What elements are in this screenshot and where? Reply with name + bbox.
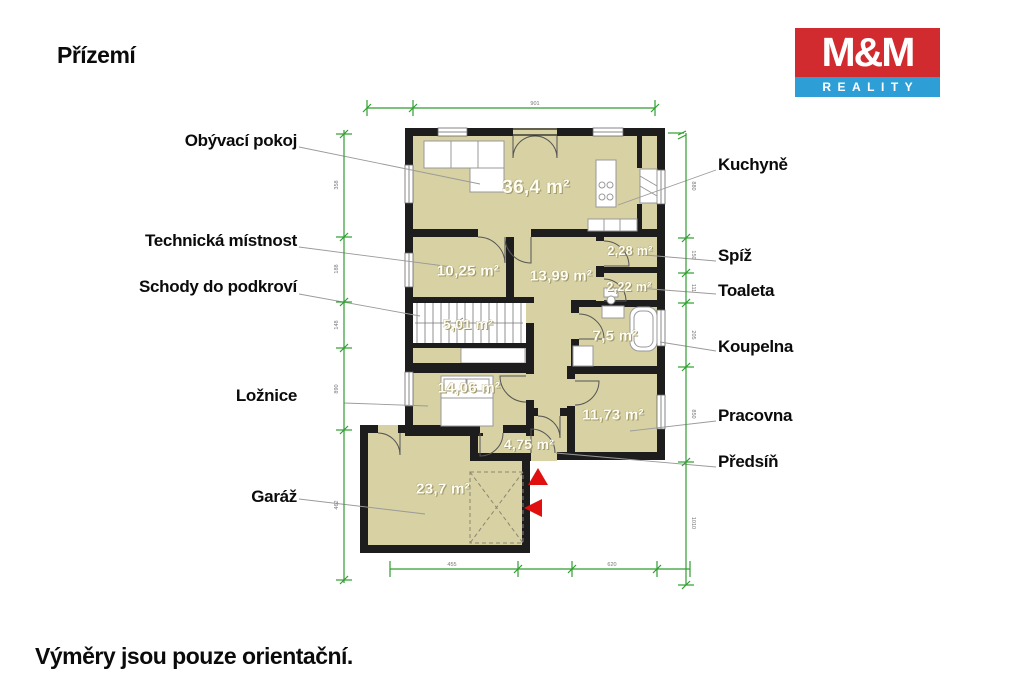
svg-text:890: 890 xyxy=(334,384,340,393)
area-chodba: 13,99 m² xyxy=(530,268,592,285)
floorplan-page: 901 455 620 358 188 148 890 462 880 150 … xyxy=(0,0,1024,683)
label-koupelna: Koupelna xyxy=(718,337,793,357)
page-title: Přízemí xyxy=(57,42,135,69)
logo-red-box: M&M xyxy=(795,28,940,77)
label-loznice: Ložnice xyxy=(236,386,297,406)
sofa xyxy=(424,141,504,168)
svg-text:880: 880 xyxy=(690,181,696,190)
floorplan-drawing: 901 455 620 358 188 148 890 462 880 150 … xyxy=(0,0,1024,683)
area-pracovna: 11,73 m² xyxy=(582,407,644,424)
area-toaleta: 2,22 m² xyxy=(606,280,651,294)
svg-text:455: 455 xyxy=(447,562,456,568)
svg-text:462: 462 xyxy=(334,500,340,509)
wardrobe-niche xyxy=(461,348,525,363)
svg-text:205: 205 xyxy=(690,330,696,339)
svg-text:148: 148 xyxy=(334,320,340,329)
area-predsin: 4,75 m² xyxy=(504,436,554,452)
area-garaz: 23,7 m² xyxy=(416,481,470,498)
svg-text:901: 901 xyxy=(530,101,539,107)
kitchen-sink xyxy=(640,169,657,203)
sofa-chaise xyxy=(470,168,504,192)
svg-text:358: 358 xyxy=(334,180,340,189)
svg-text:620: 620 xyxy=(607,562,616,568)
mm-reality-logo: M&M REALITY xyxy=(795,28,940,97)
svg-text:188: 188 xyxy=(334,264,340,273)
logo-mm-text: M&M xyxy=(822,32,914,73)
logo-reality-text: REALITY xyxy=(816,81,919,93)
area-koupelna: 7,5 m² xyxy=(592,328,637,345)
svg-text:850: 850 xyxy=(690,409,696,418)
washing-machine xyxy=(573,346,593,366)
svg-text:1010: 1010 xyxy=(690,517,696,529)
label-technicka-mistnost: Technická místnost xyxy=(145,231,297,251)
area-schody: 5,01 m² xyxy=(443,316,493,332)
label-kuchyne: Kuchyně xyxy=(718,155,788,175)
entrance-arrow-up xyxy=(528,468,548,485)
area-loznice: 14,06 m² xyxy=(438,380,500,397)
label-obyvaci-pokoj: Obývací pokoj xyxy=(185,131,297,151)
label-schody-do-podkrovi: Schody do podkroví xyxy=(139,277,297,297)
label-predsin: Předsíň xyxy=(718,452,778,472)
label-pracovna: Pracovna xyxy=(718,406,792,426)
label-garaz: Garáž xyxy=(251,487,297,507)
area-spiz: 2,28 m² xyxy=(607,244,652,258)
area-technicka-mistnost: 10,25 m² xyxy=(437,263,499,280)
bathroom-sink xyxy=(602,306,624,318)
area-obyvaci-pokoj: 36,4 m² xyxy=(502,177,570,199)
label-toaleta: Toaleta xyxy=(718,281,774,301)
svg-text:111: 111 xyxy=(690,284,696,292)
label-spiz: Spíž xyxy=(718,246,752,266)
kitchen-counter xyxy=(588,219,637,231)
svg-text:150: 150 xyxy=(690,250,696,259)
logo-blue-bar: REALITY xyxy=(795,77,940,97)
disclaimer-text: Výměry jsou pouze orientační. xyxy=(35,643,353,670)
